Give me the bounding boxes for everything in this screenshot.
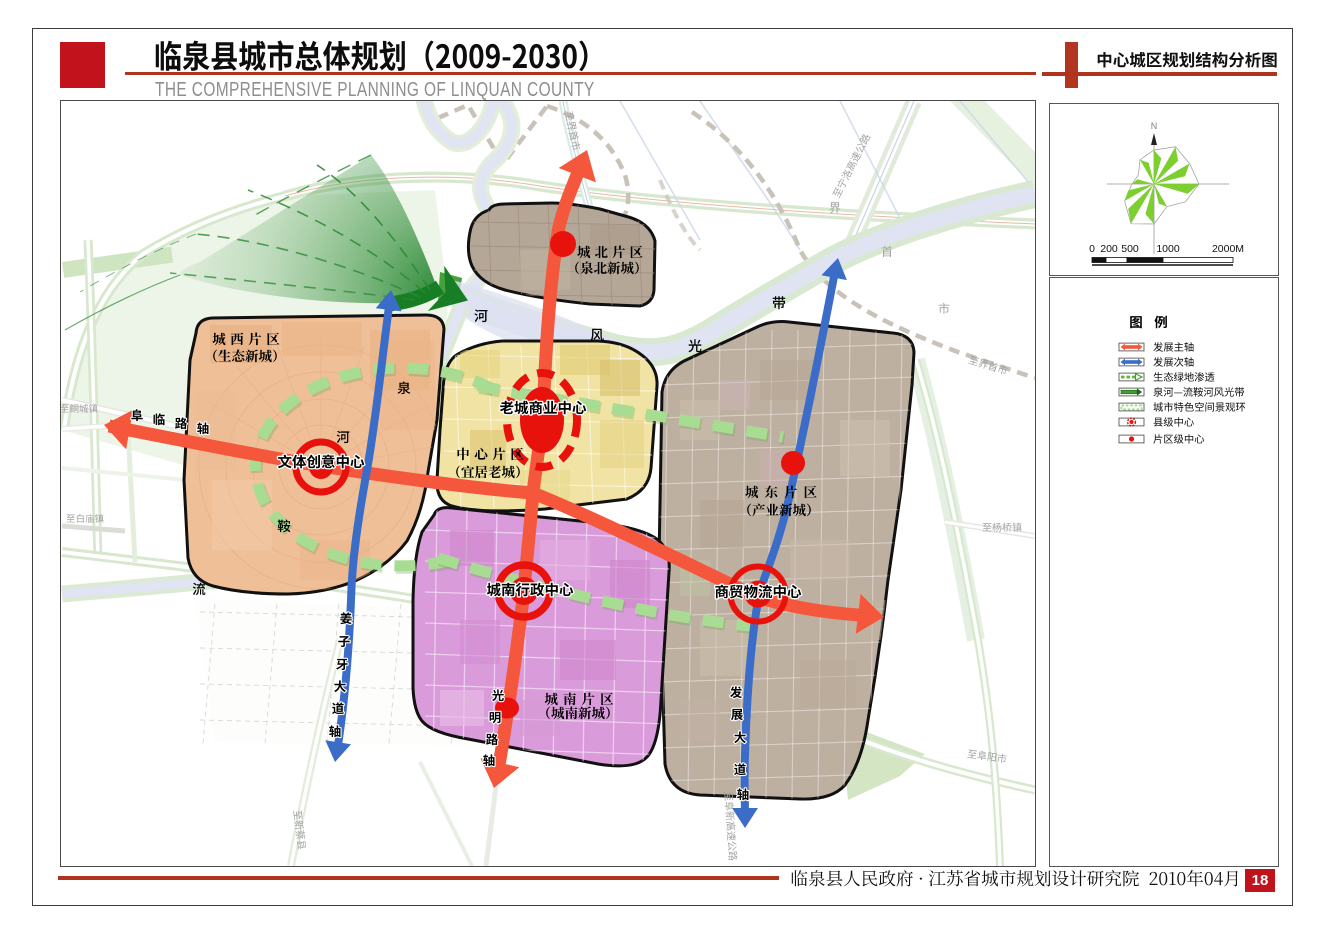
svg-text:2000M: 2000M	[1212, 243, 1244, 255]
svg-text:1000: 1000	[1156, 243, 1180, 255]
svg-text:N: N	[1151, 121, 1158, 131]
svg-text:200: 200	[1100, 243, 1118, 255]
svg-text:500: 500	[1121, 243, 1139, 255]
svg-text:0: 0	[1089, 243, 1095, 255]
